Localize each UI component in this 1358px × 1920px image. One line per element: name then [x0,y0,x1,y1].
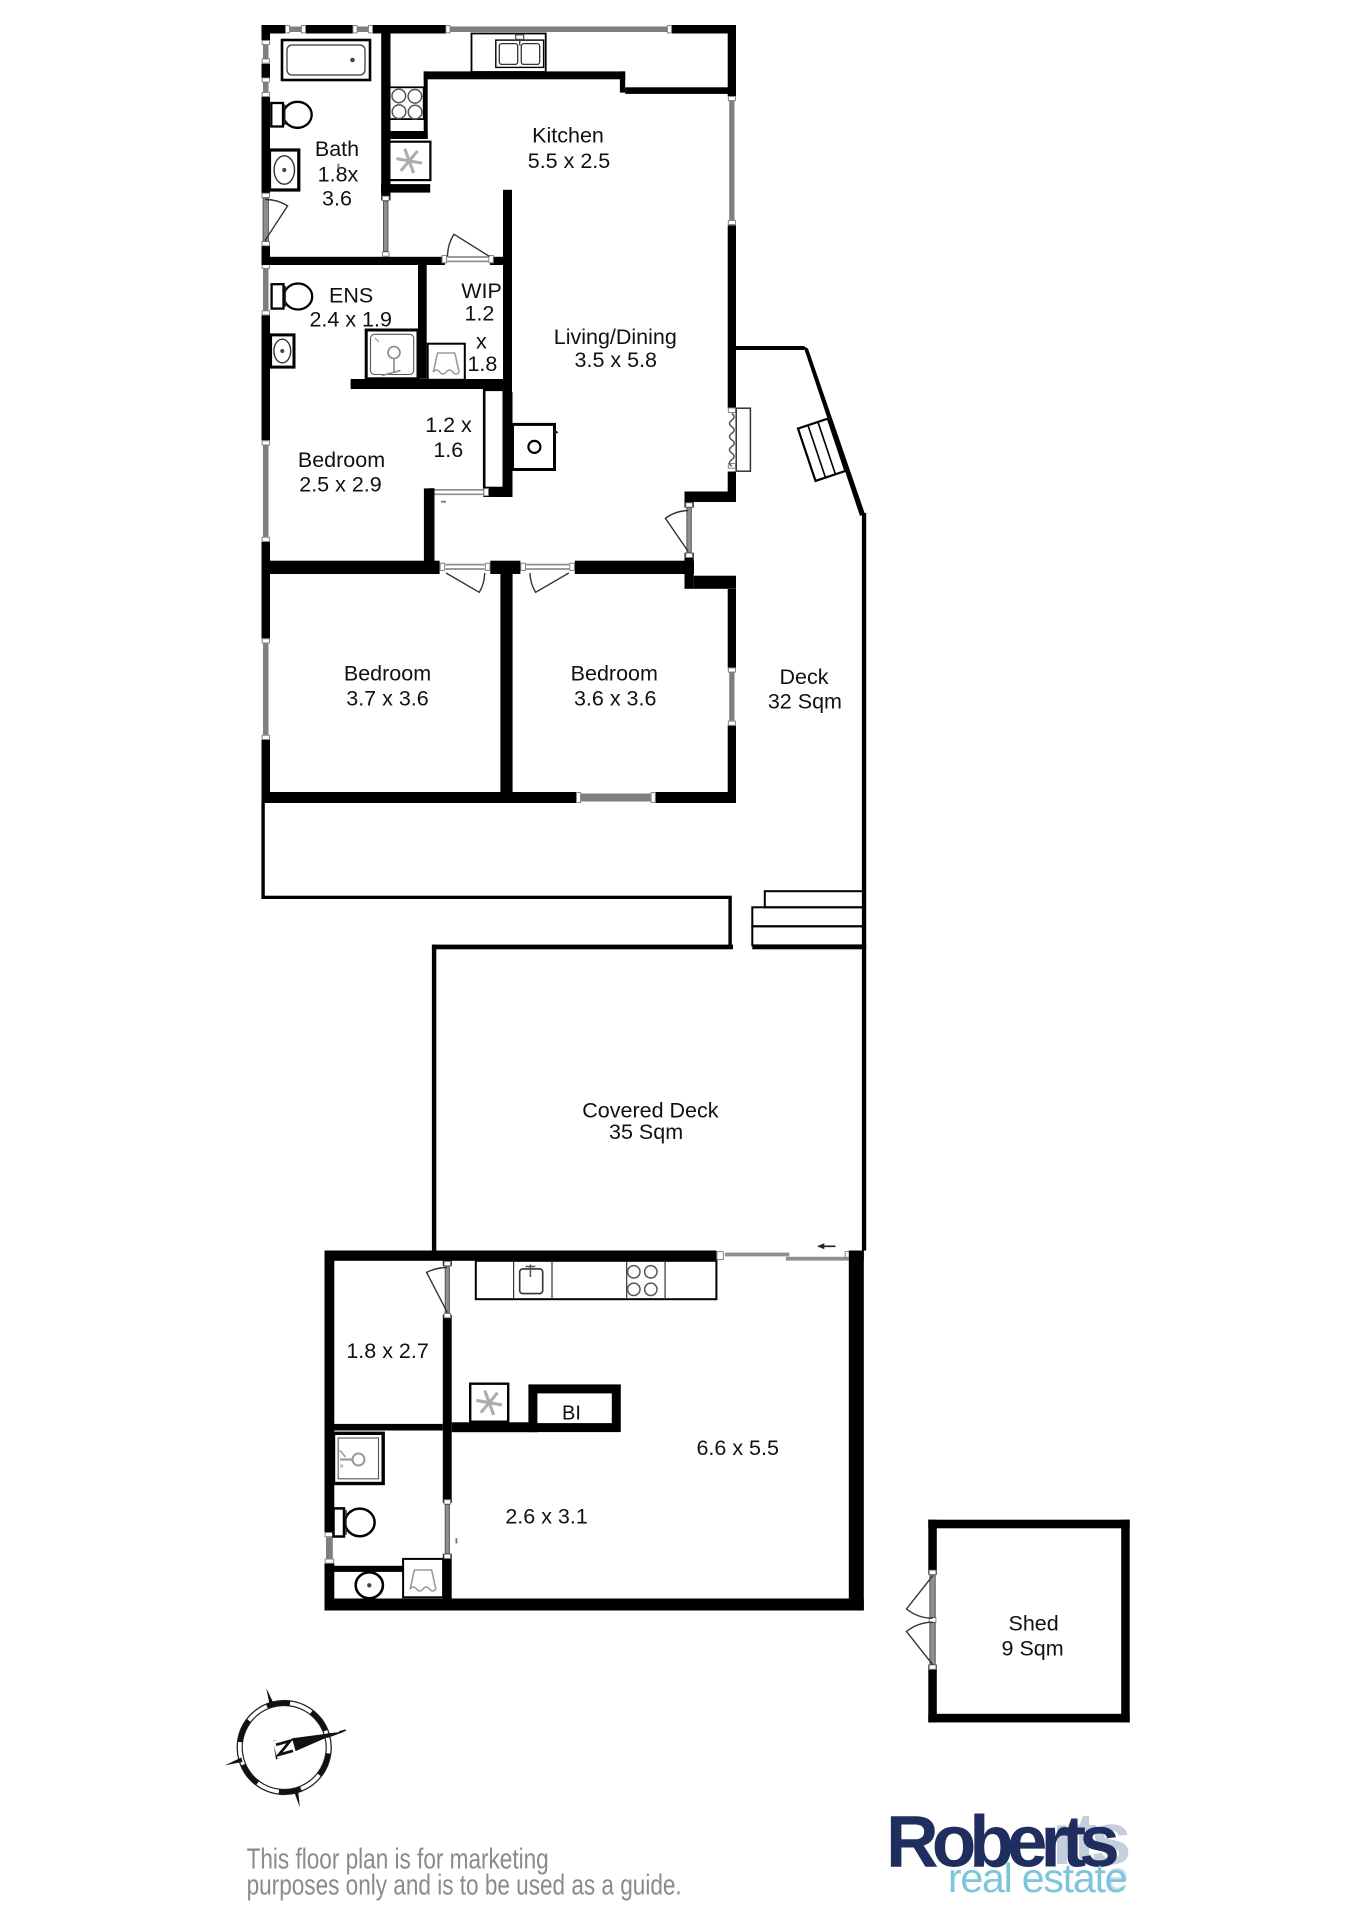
svg-text:2.5 x 2.9: 2.5 x 2.9 [299,472,381,496]
svg-text:1.8: 1.8 [467,352,497,376]
svg-text:Living/Dining: Living/Dining [554,325,677,349]
svg-text:BI: BI [562,1402,581,1424]
svg-text:6.6 x 5.5: 6.6 x 5.5 [696,1436,779,1460]
svg-text:3.7 x 3.6: 3.7 x 3.6 [346,687,429,711]
svg-text:1.2 x: 1.2 x [425,413,472,437]
svg-text:3.5 x 5.8: 3.5 x 5.8 [575,348,658,372]
svg-text:Bedroom: Bedroom [344,662,431,686]
svg-text:ENS: ENS [329,284,373,308]
svg-text:Bedroom: Bedroom [571,662,658,686]
svg-text:WIP: WIP [461,279,502,303]
svg-text:Shed: Shed [1008,1612,1058,1636]
svg-text:Bedroom: Bedroom [298,448,385,472]
svg-text:purposes only and is to be use: purposes only and is to be used as a gui… [247,1870,682,1901]
svg-text:9 Sqm: 9 Sqm [1002,1637,1064,1661]
svg-text:5.5 x 2.5: 5.5 x 2.5 [528,149,611,173]
svg-text:x: x [476,330,487,354]
svg-text:1.6: 1.6 [433,438,463,462]
svg-text:3.6: 3.6 [322,187,352,211]
svg-text:3.6 x 3.6: 3.6 x 3.6 [574,687,657,711]
svg-text:2.4 x 1.9: 2.4 x 1.9 [309,308,391,332]
svg-text:Deck: Deck [780,665,829,689]
svg-text:1.8 x 2.7: 1.8 x 2.7 [346,1339,428,1363]
svg-text:32 Sqm: 32 Sqm [768,689,842,713]
svg-text:Bath: Bath [315,137,359,161]
svg-text:35 Sqm: 35 Sqm [609,1120,683,1144]
svg-text:Covered Deck: Covered Deck [582,1099,718,1123]
svg-text:real estate: real estate [948,1855,1126,1901]
svg-text:Kitchen: Kitchen [532,123,604,147]
svg-text:1.2: 1.2 [464,301,494,325]
svg-text:2.6 x 3.1: 2.6 x 3.1 [505,1505,587,1529]
